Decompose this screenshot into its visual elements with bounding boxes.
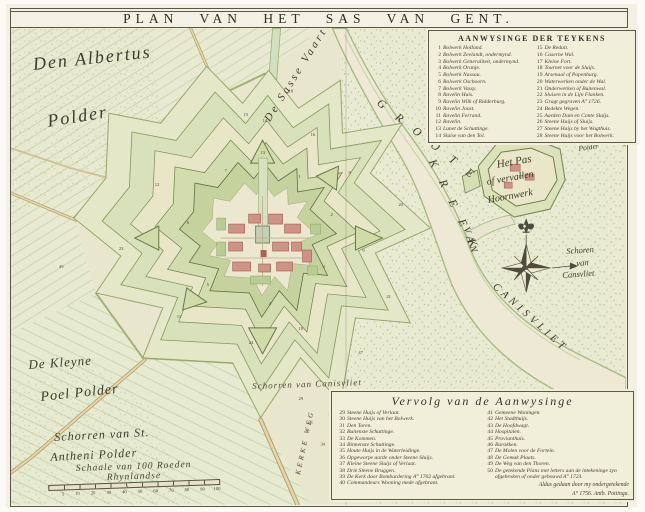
legend-entry: 7 Bolwerk Vassy.	[432, 86, 531, 93]
scale-tick: 70	[158, 488, 174, 494]
legend-entry-text: Bolwerk Generaliteit, ondermynd.	[443, 59, 519, 66]
legend-entry: 22 Sluisen in de Lijn Flanken.	[534, 92, 633, 99]
svg-text:11: 11	[177, 314, 182, 319]
legend-entry-number: 2	[432, 52, 443, 59]
scale-tick: 100	[205, 486, 221, 492]
svg-text:49: 49	[59, 264, 64, 269]
legend-entry: 3 Bolwerk Generaliteit, ondermynd.	[432, 59, 531, 66]
legend-entry: 10 Ravelin Joost.	[432, 106, 531, 113]
scale-tick: 90	[189, 487, 205, 493]
legend-entry-text: Bolwerk Oschoorn.	[443, 79, 487, 86]
svg-text:23: 23	[119, 246, 124, 251]
legend-entry: 6 Bolwerk Oschoorn.	[432, 79, 531, 86]
legend-entry: 27 Steene Huijs by het Wagthuis.	[534, 126, 633, 133]
legend-entry-text: Sluisen in de Lijn Flanken.	[545, 92, 605, 99]
legend-entry-number: 4	[432, 65, 443, 72]
legend-entry-number: 11	[432, 113, 443, 120]
legend-entry: 23 Gragt gegraven A° 1726.	[534, 99, 633, 106]
legend-entry-text: De getekende Plans met letters aan de in…	[495, 468, 629, 481]
legend-entry-text: Steene Huijs of Sluijs.	[545, 119, 594, 126]
legend-entry-number: 13	[432, 126, 443, 133]
legend-entry-text: Bolwerk Zeelandt, ondermynd.	[443, 52, 512, 59]
legend-vervolg-col2: 41 Gemeene Woningen. 42 Het Stadthuijs. …	[484, 410, 629, 498]
legend-entry-number: 9	[432, 99, 443, 106]
svg-text:34: 34	[320, 442, 325, 447]
legend-aanwysinge-col2: 15 De Reduit. 16 Caserne Wal. 17 Kleine …	[534, 45, 633, 140]
legend-entry-number: 1	[432, 45, 443, 52]
legend-entry-number: 8	[432, 92, 443, 99]
legend-vervolg-col2-items: 41 Gemeene Woningen. 42 Het Stadthuijs. …	[484, 410, 629, 480]
legend-signature-line1: Aldus gedaan door my ondergetekende	[484, 482, 629, 489]
svg-text:15: 15	[244, 112, 249, 117]
svg-text:21: 21	[386, 294, 391, 299]
legend-entry: 1 Bolwerk Holland.	[432, 45, 531, 52]
scale-tick: 80	[173, 487, 189, 493]
legend-entry-text: Ravelin Ferrand.	[443, 113, 482, 120]
legend-aanwysinge-title: AANWYSINGE DER TEYKENS	[432, 34, 632, 43]
map-plan-sas-van-gent: { "title": "PLAN VAN HET SAS VAN GENT.",…	[0, 0, 645, 512]
svg-text:12: 12	[155, 182, 160, 187]
scale-bar: Schaale van 100 Roeden Rhynlandse 510203…	[47, 459, 220, 497]
legend-entry-number: 14	[432, 133, 443, 140]
legend-entry-text: Commandeurs Wooning mede afgebrant.	[347, 480, 438, 486]
scale-tick: 50	[127, 489, 143, 495]
svg-text:10: 10	[299, 326, 304, 331]
legend-entry-number: 19	[534, 72, 545, 79]
legend-entry-text: Lunet de Schuttinge.	[443, 126, 489, 133]
legend-entry: 4 Bolwerk Oranje.	[432, 65, 531, 72]
legend-entry: 50 De getekende Plans met letters aan de…	[484, 468, 629, 481]
legend-vervolg: Vervolg van de Aanwysinge 29 Steene Huij…	[331, 391, 634, 500]
legend-entry-number: 16	[534, 52, 545, 59]
legend-entry-number: 7	[432, 86, 443, 93]
legend-entry: 9 Ravelin Wilk of Ridderburg.	[432, 99, 531, 106]
legend-entry-number: 40	[336, 480, 347, 486]
legend-entry: 15 De Reduit.	[534, 45, 633, 52]
legend-entry-number: 17	[534, 59, 545, 66]
label-schoren: Schoren	[566, 245, 594, 255]
legend-entry: 40 Commandeurs Wooning mede afgebrant.	[336, 480, 481, 486]
legend-aanwysinge: AANWYSINGE DER TEYKENS 1 Bolwerk Holland…	[428, 30, 636, 143]
legend-entry-number: 6	[432, 79, 443, 86]
legend-entry-text: Ravelin Wilk of Ridderburg.	[443, 99, 506, 106]
svg-text:47: 47	[358, 350, 363, 355]
legend-entry-text: Bedekte Wegen.	[545, 106, 580, 113]
legend-entry: 26 Steene Huijs of Sluijs.	[534, 119, 633, 126]
legend-entry-text: Onderwerken of Buitenwal.	[545, 86, 607, 93]
label-cansvliet: Cansvliet	[562, 269, 595, 280]
legend-entry-number: 26	[534, 119, 545, 126]
legend-entry-text: Tournet voor de Sluijs.	[545, 65, 596, 72]
legend-entry-text: Caserne Wal.	[545, 52, 575, 59]
scale-tick: 20	[80, 490, 96, 496]
legend-entry-text: De Reduit.	[545, 45, 569, 52]
legend-entry: 17 Kleine Fort.	[534, 59, 633, 66]
legend-entry: 2 Bolwerk Zeelandt, ondermynd.	[432, 52, 531, 59]
svg-text:13: 13	[261, 150, 266, 155]
legend-vervolg-title: Vervolg van de Aanwysinge	[336, 394, 629, 409]
legend-aanwysinge-col1: 1 Bolwerk Holland. 2 Bolwerk Zeelandt, o…	[432, 45, 531, 140]
legend-entry-text: Bolwerk Nassau.	[443, 72, 481, 79]
legend-entry: 20 Waterwerken onder de Wal.	[534, 79, 633, 86]
legend-entry: 14 Sluise van den Tol.	[432, 133, 531, 140]
legend-entry-number: 24	[534, 106, 545, 113]
legend-entry-number: 25	[534, 113, 545, 120]
legend-entry: 8 Ravelin Huis.	[432, 92, 531, 99]
legend-entry-number: 27	[534, 126, 545, 133]
svg-text:24: 24	[249, 340, 254, 345]
legend-entry-number: 15	[534, 45, 545, 52]
svg-text:16: 16	[311, 132, 316, 137]
legend-entry-text: Sluise van den Tol.	[443, 133, 485, 140]
legend-entry: 28 Steene Huijs voor het Bolwerk.	[534, 133, 633, 140]
legend-entry-number: 3	[432, 59, 443, 66]
legend-vervolg-col1: 29 Steene Huijs of Verlaat. 30 Steene Hu…	[336, 410, 481, 498]
legend-entry-text: Bolwerk Vassy.	[443, 86, 477, 93]
legend-signature-line2: A° 1756. Anth. Pottinga.	[484, 491, 629, 498]
map-title: PLAN VAN HET SAS VAN GENT.	[10, 11, 627, 27]
legend-entry-number: 21	[534, 86, 545, 93]
legend-entry-number: 50	[484, 468, 495, 481]
legend-entry: 16 Caserne Wal.	[534, 52, 633, 59]
legend-entry-text: Gragt gegraven A° 1726.	[545, 99, 602, 106]
legend-entry-number: 5	[432, 72, 443, 79]
svg-text:20: 20	[398, 202, 403, 207]
scale-tick: 5	[48, 491, 64, 497]
legend-entry-text: Ravelin.	[443, 119, 461, 126]
legend-entry-number: 18	[534, 65, 545, 72]
legend-entry-text: Kleine Fort.	[545, 59, 572, 66]
legend-entry-text: Bolwerk Oranje.	[443, 65, 480, 72]
legend-entry-text: Ravelin Huis.	[443, 92, 473, 99]
legend-entry-text: Steene Huijs by het Wagthuis.	[545, 126, 611, 133]
legend-entry: 21 Onderwerken of Buitenwal.	[534, 86, 633, 93]
legend-entry-text: Steene Huijs voor het Bolwerk.	[545, 133, 614, 140]
church-block	[261, 250, 267, 257]
legend-entry-text: Arsenaal of Papenburg.	[545, 72, 598, 79]
legend-entry-number: 10	[432, 106, 443, 113]
legend-entry-text: Bolwerk Holland.	[443, 45, 483, 52]
legend-entry-number: 22	[534, 92, 545, 99]
legend-entry: 11 Ravelin Ferrand.	[432, 113, 531, 120]
legend-entry: 12 Ravelin.	[432, 119, 531, 126]
scale-tick: 40	[111, 489, 127, 495]
legend-entry-number: 28	[534, 133, 545, 140]
legend-entry: 24 Bedekte Wegen.	[534, 106, 633, 113]
legend-entry-text: Ravelin Joost.	[443, 106, 475, 113]
scale-tick: 10	[64, 491, 80, 497]
scale-tick: 30	[95, 490, 111, 496]
legend-entry-text: Waterwerken onder de Wal.	[545, 79, 607, 86]
legend-entry: 18 Tournet voor de Sluijs.	[534, 65, 633, 72]
label-schoren-van: van	[576, 258, 589, 267]
svg-text:29: 29	[299, 396, 304, 401]
legend-entry-number: 12	[432, 119, 443, 126]
legend-entry: 19 Arsenaal of Papenburg.	[534, 72, 633, 79]
legend-entry-number: 20	[534, 79, 545, 86]
legend-entry: 13 Lunet de Schuttinge.	[432, 126, 531, 133]
legend-entry: 5 Bolwerk Nassau.	[432, 72, 531, 79]
scale-tick: 60	[142, 488, 158, 494]
legend-entry-number: 23	[534, 99, 545, 106]
